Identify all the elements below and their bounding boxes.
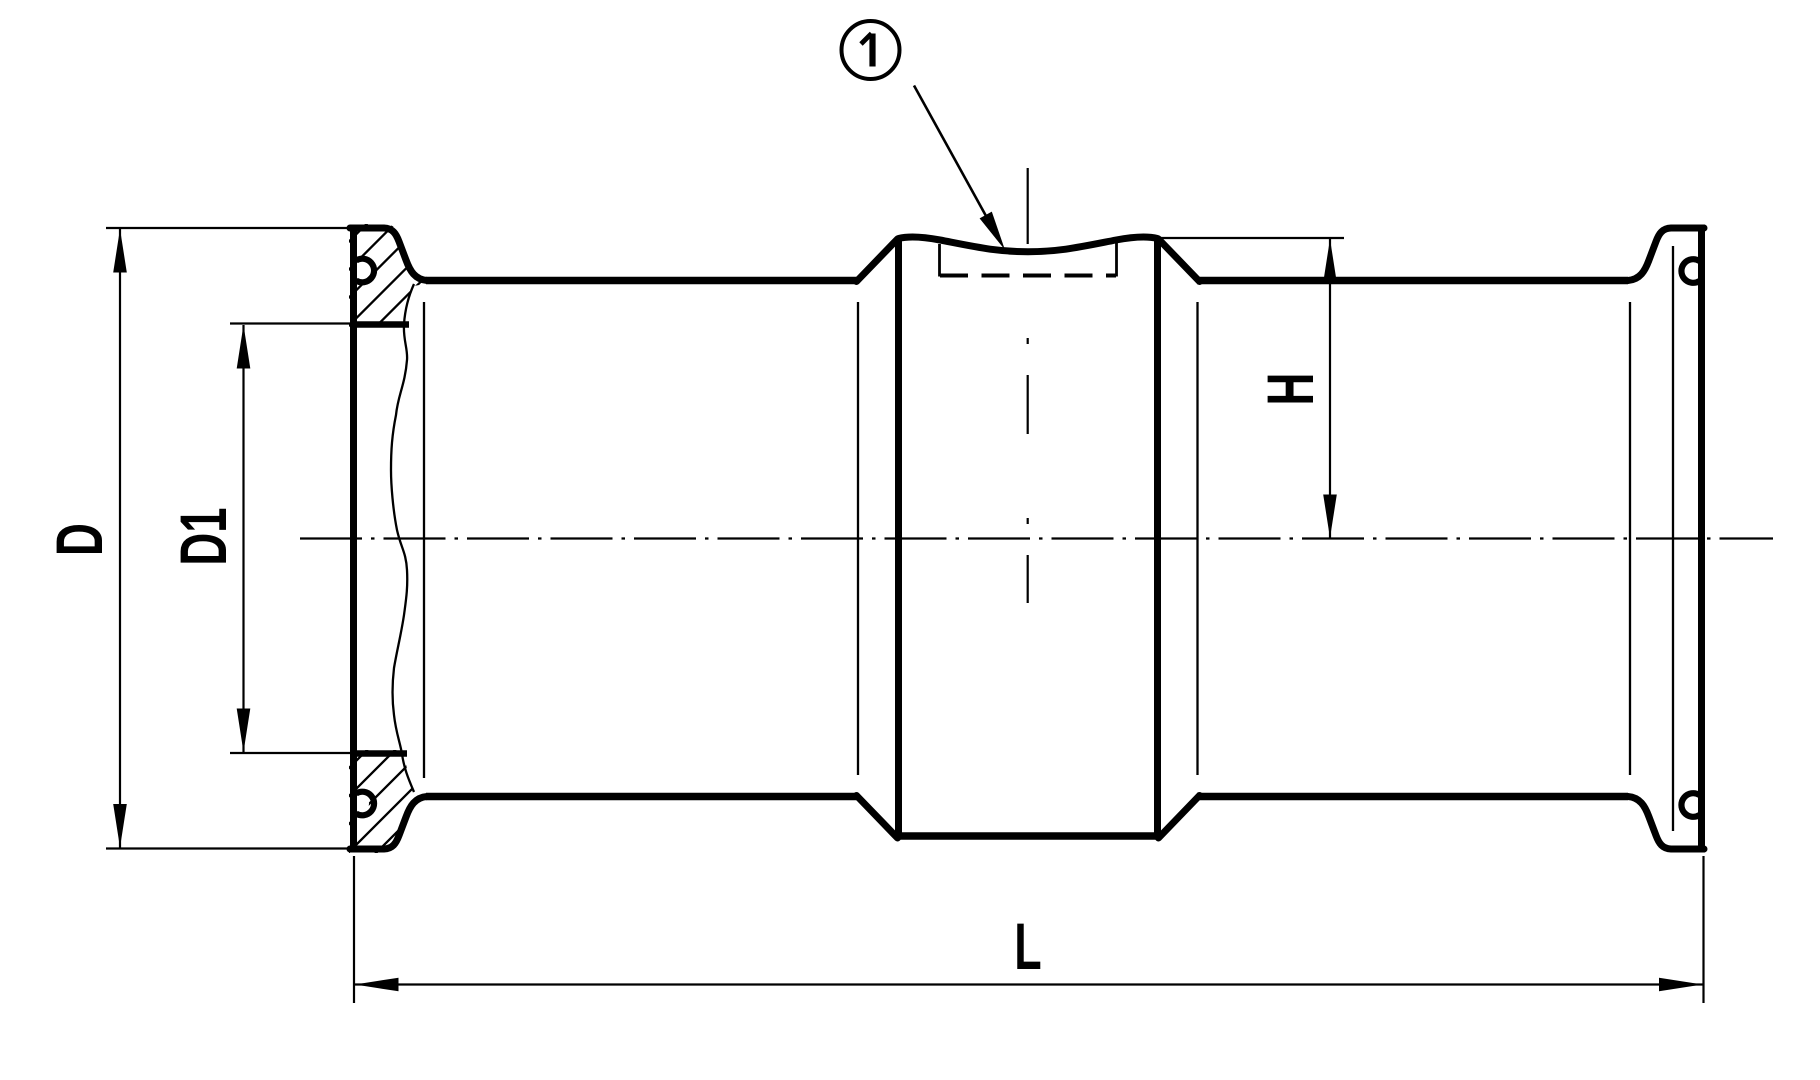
svg-text:H: H (1253, 373, 1327, 406)
svg-text:L: L (1014, 909, 1041, 983)
svg-text:D: D (42, 523, 116, 556)
svg-text:D1: D1 (166, 507, 240, 565)
